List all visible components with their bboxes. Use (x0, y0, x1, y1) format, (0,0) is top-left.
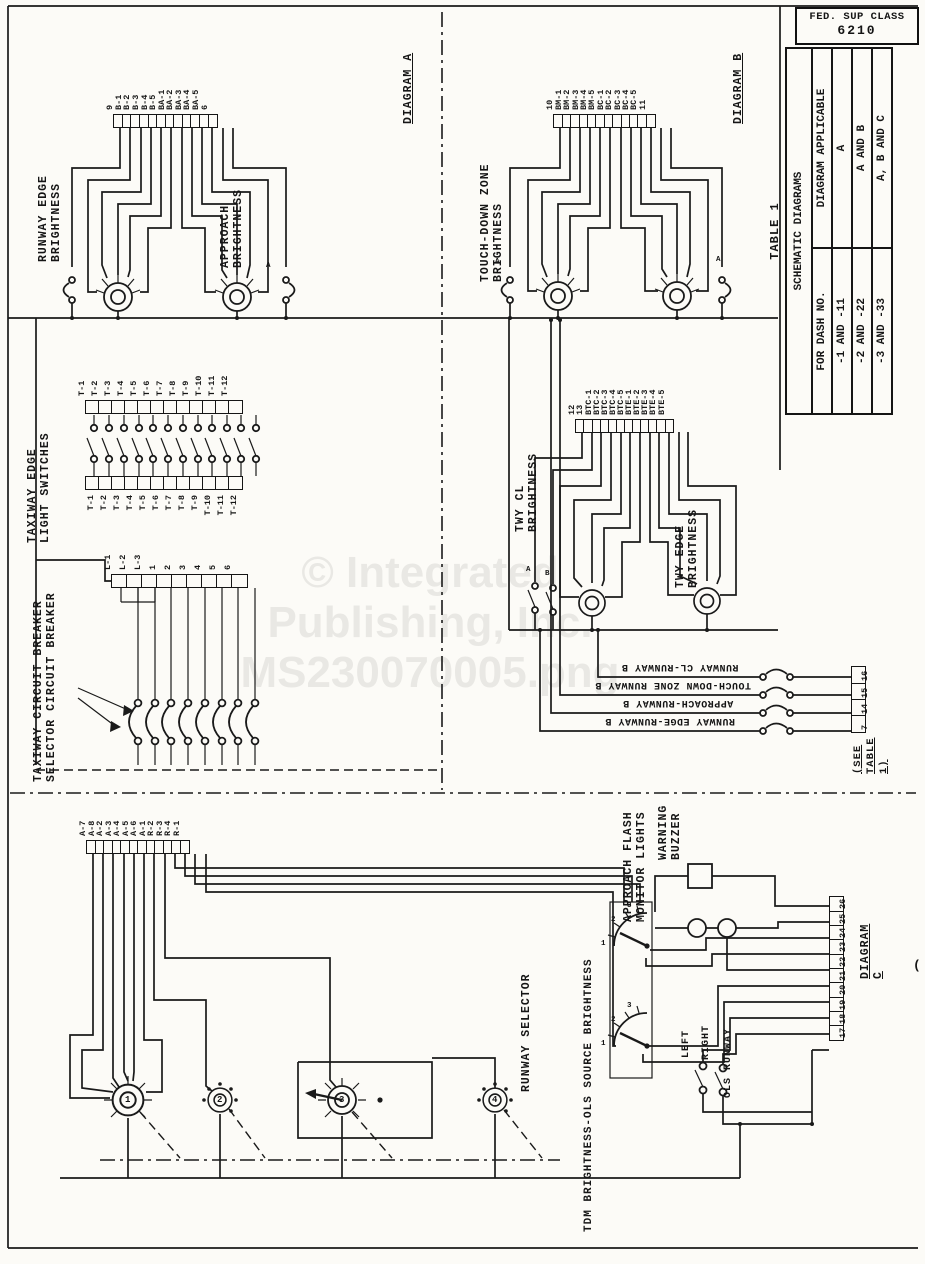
diagram-c-label: DIAGRAM C (859, 924, 885, 979)
table1-col-diagram: DIAGRAM APPLICABLE (812, 48, 832, 248)
relay-label-runway-cl: RUNWAY CL-RUNWAY B (600, 661, 760, 672)
taxiway-breaker-label: TAXIWAY CIRCUIT BREAKER SELECTOR CIRCUIT… (32, 592, 58, 782)
warning-buzzer-label: WARNING BUZZER (657, 805, 683, 860)
contact-a-label: A (495, 258, 500, 266)
left-label: LEFT (680, 1030, 693, 1058)
runway-selector-label: RUNWAY SELECTOR (520, 973, 533, 1092)
diagram-applicable: A, B AND C (872, 48, 892, 248)
taxiway-top-strip: T-1T-2T-3T-4T-5T-6T-7T-8T-9T-10T-11T-12 (87, 400, 243, 414)
selector-switch-number: 4 (492, 1096, 497, 1104)
see-table-note: (SEE TABLE 1) (852, 738, 891, 775)
fed-sup-class-box: FED. SUP CLASS 6210 (795, 7, 919, 45)
monitor-light-icon (718, 919, 736, 937)
terminal-cell: 16 (851, 666, 866, 684)
relay-label-tdz: TOUCH-DOWN ZONE RUNWAY B (583, 679, 763, 690)
table1: TABLE 1 SCHEMATIC DIAGRAMS FOR DASH NO. … (768, 47, 893, 415)
fed-sup-class-label: FED. SUP CLASS (797, 11, 917, 23)
terminal-cell: 11 (646, 114, 656, 128)
table1-caption: TABLE 1 (768, 47, 785, 415)
approach-brightness-label: APPROACH BRIGHTNESS (219, 189, 245, 268)
diagram-b-tdz-wiring (502, 128, 731, 318)
taxiway-bottom-strip: T-1T-2T-3T-4T-5T-6T-7T-8T-9T-10T-11T-12 (87, 476, 243, 490)
terminal-cell: 6 (231, 574, 248, 588)
taxiway-switches-label: TAXIWAY EDGE LIGHT SWITCHES (26, 432, 52, 543)
breaker-terminal-strip: L-1L-2L-3123456 (113, 574, 248, 588)
dash-no: -3 AND -33 (872, 248, 892, 414)
table-row: -1 AND -11 A (832, 48, 852, 414)
terminal-cell: R-1 (180, 840, 190, 854)
diagram-a-terminal-strip: 9B-1B-2B-3B-4B-5BA-1BA-2BA-3BA-4BA-56 (115, 114, 218, 128)
twy-contact-a-label: A (526, 566, 531, 574)
rotary-switch-icon (663, 282, 691, 310)
selector-position-label: 1 (601, 940, 606, 948)
selector-switch-number: 2 (217, 1096, 222, 1104)
diagram-c-terminal-column: 26252423222120191817 (829, 898, 844, 1041)
monitor-light-icon (688, 919, 706, 937)
table1-title: SCHEMATIC DIAGRAMS (786, 48, 812, 414)
terminal-cell: 7 (851, 715, 866, 733)
terminal-cell: 17 (829, 1025, 844, 1041)
diagram-b-label: DIAGRAM B (732, 53, 745, 124)
relay-terminal-column: 1615147 (851, 668, 866, 733)
edge-mark: ( (913, 958, 921, 973)
table-row: -2 AND -22 A AND B (852, 48, 872, 414)
tdz-terminal-strip: 10BM-1BM-2BM-3BM-4BM-5BC-1BC-2BC-3BC-4BC… (555, 114, 656, 128)
diagram-a-wiring (64, 128, 295, 318)
diagram-a-label: DIAGRAM A (402, 53, 415, 124)
terminal-cell: 15 (851, 683, 866, 701)
selector-position-label: 3 (627, 1002, 632, 1010)
table1-col-dash: FOR DASH NO. (812, 248, 832, 414)
relay-label-runway-edge: RUNWAY EDGE-RUNWAY B (585, 715, 755, 726)
ols-runway-label: OLS RUNWAY (722, 1028, 735, 1098)
twy-contact-b-label: B (545, 570, 550, 578)
relay-label-approach: APPROACH-RUNWAY B (603, 697, 753, 708)
selector-position-label: 2 (611, 916, 616, 924)
rotary-switch-icon (544, 282, 572, 310)
twy-wiring (509, 318, 778, 630)
fed-sup-class-value: 6210 (797, 23, 917, 38)
buzzer-box (688, 864, 712, 888)
approach-flash-label: APPROACH FLASH MONITOR LIGHTS (622, 811, 648, 922)
table-row: -3 AND -33 A, B AND C (872, 48, 892, 414)
runway-selector-strip: A-7A-8A-2A-3A-4A-5A-6A-1R-2R-3R-4R-1 (88, 840, 190, 854)
twy-edge-brightness-label: TWY EDGE BRIGHTNESS (674, 509, 700, 588)
rotary-switch-icon (579, 590, 605, 616)
diagram-applicable: A AND B (852, 48, 872, 248)
runway-edge-brightness-label: RUNWAY EDGE BRIGHTNESS (37, 175, 63, 262)
terminal-cell: BTE-5 (665, 419, 675, 433)
selector-switch-number: 1 (125, 1096, 130, 1104)
selector-position-label: 1 (601, 1040, 606, 1048)
selector-enclosure (610, 902, 652, 1078)
rotary-switch-icon (223, 283, 251, 311)
right-label: RIGHT (700, 1025, 713, 1060)
twy-cl-brightness-label: TWY CL BRIGHTNESS (514, 453, 540, 532)
twy-terminal-strip: 1213BTC-1BTC-2BTC-3BTC-4BTC-5BTE-1BTE-2B… (577, 419, 674, 433)
rotary-switch-icon (104, 283, 132, 311)
diagram-applicable: A (832, 48, 852, 248)
contact-a-label: A (266, 262, 271, 270)
touch-down-zone-label: TOUCH-DOWN ZONE BRIGHTNESS (479, 163, 505, 282)
terminal-cell: 6 (208, 114, 218, 128)
rotary-switch-icon (694, 588, 720, 614)
contact-a-label: A (716, 256, 721, 264)
taxiway-wiring (78, 415, 259, 765)
tdm-brightness-label: TDM BRIGHTNESS-OLS SOURCE BRIGHTNESS (583, 958, 596, 1232)
dash-no: -2 AND -22 (852, 248, 872, 414)
terminal-cell: 14 (851, 699, 866, 717)
selector-position-label: 2 (611, 1016, 616, 1024)
terminal-cell: T-12 (228, 476, 243, 490)
dash-no: -1 AND -11 (832, 248, 852, 414)
terminal-cell: T-12 (228, 400, 243, 414)
selector-position-label: 3 (627, 902, 632, 910)
schematic-sheet: © Integrated Publishing, Inc. MS23007000… (0, 0, 925, 1264)
selector-switch-number: 3 (339, 1096, 344, 1104)
